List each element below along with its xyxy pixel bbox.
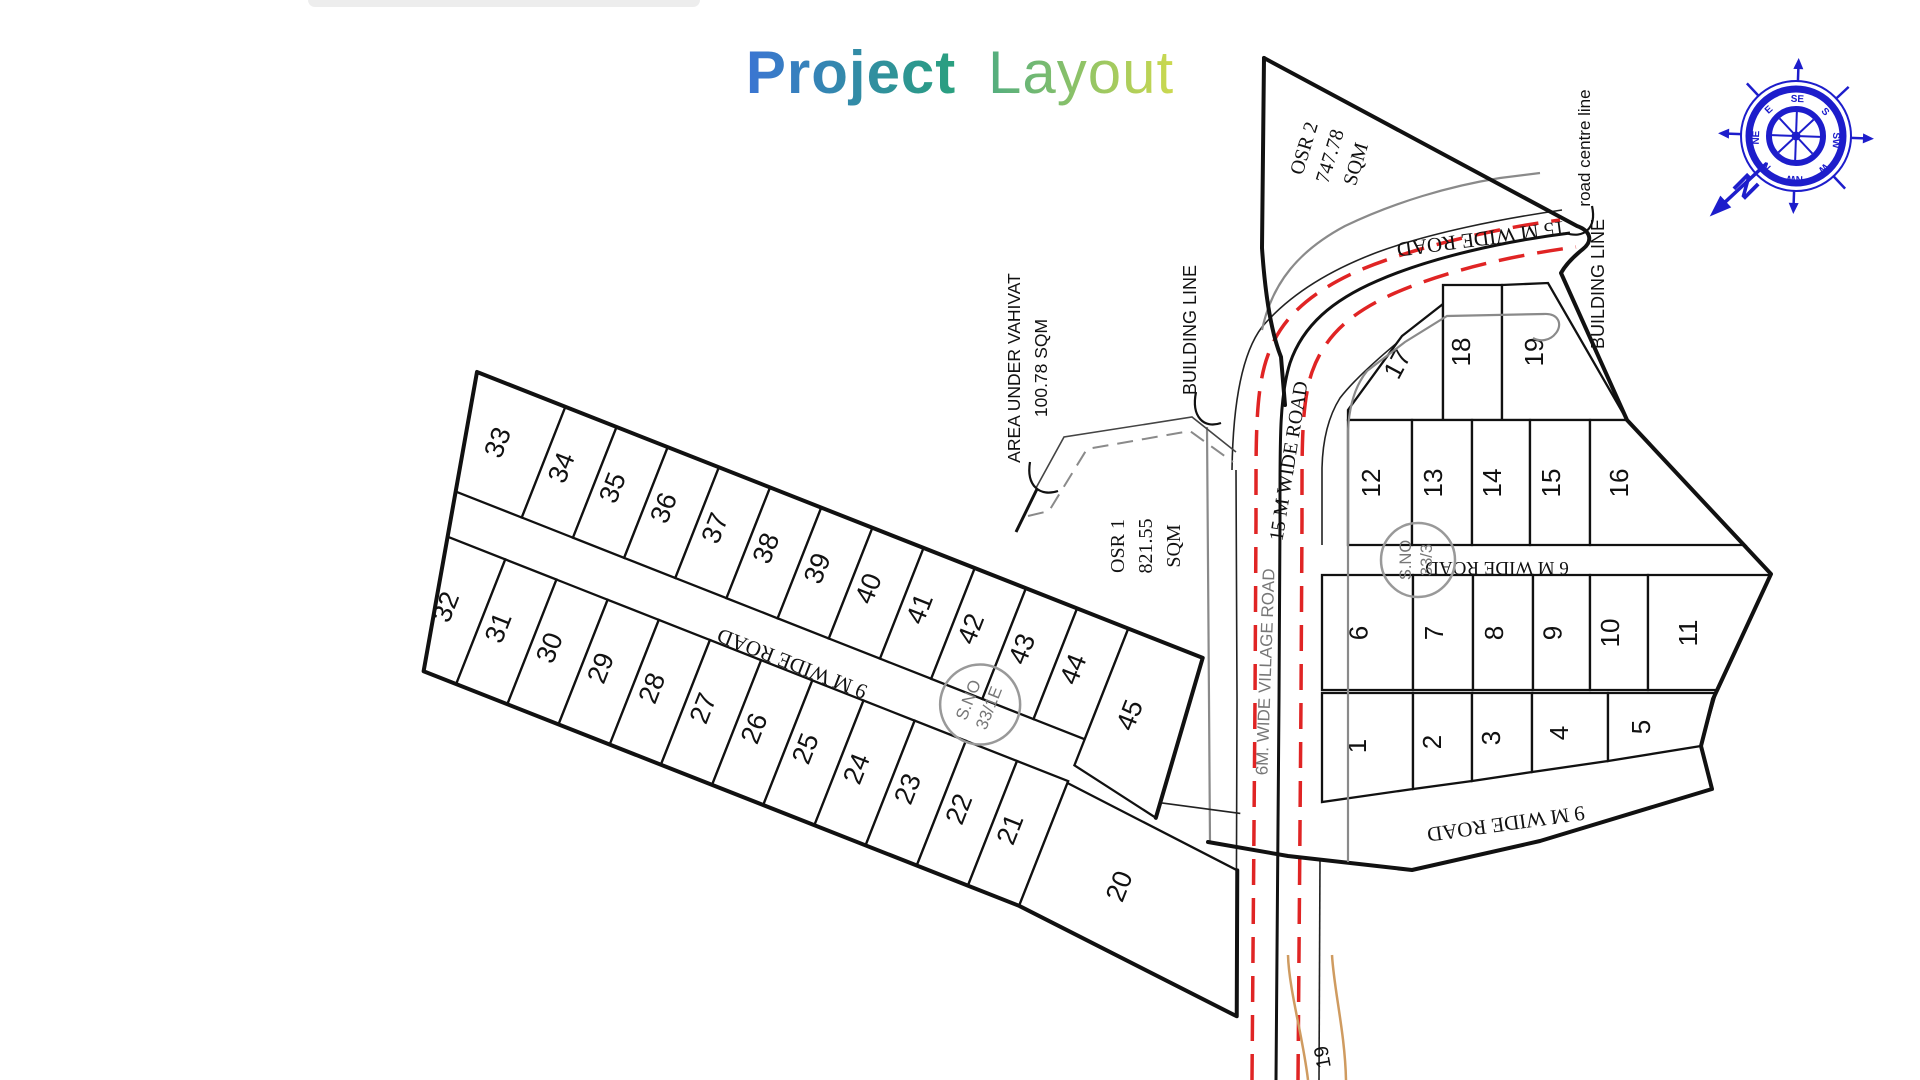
osr1-line3: SQM: [1163, 524, 1185, 568]
compass-spike-arrowhead: [1789, 203, 1799, 214]
page: Project Layout 3334353637383940414243444…: [0, 0, 1920, 1080]
road-label-6m: 6 M WIDE ROAD: [1425, 557, 1569, 578]
compass-spike: [1834, 176, 1846, 188]
vahivat-line1: AREA UNDER VAHIVAT: [1004, 273, 1024, 463]
plot-number-9: 9: [1538, 626, 1568, 640]
compass-spoke: [1796, 120, 1814, 136]
vahivat-boundary-dashed: [1028, 431, 1233, 516]
compass-spoke: [1795, 136, 1796, 160]
plot-number-1: 1: [1342, 739, 1372, 753]
compass-dir-E: E: [1763, 104, 1776, 117]
compass-spoke: [1772, 135, 1796, 136]
plot-number-16: 16: [1604, 469, 1634, 498]
compass-spoke: [1796, 136, 1820, 137]
survey-right-line2: 33/3: [1418, 544, 1436, 576]
compass-spoke: [1796, 112, 1797, 136]
plot-number-12: 12: [1356, 469, 1386, 498]
compass-dir-SE: SE: [1791, 94, 1805, 105]
survey-right-line1: S.NO: [1397, 540, 1415, 581]
left-block: 3334353637383940414243444532313029282726…: [359, 372, 1354, 1016]
vahivat-label: AREA UNDER VAHIVAT100.78 SQM: [1004, 273, 1051, 463]
compass-spike: [1836, 87, 1848, 99]
vahivat-boundary-solid: [1036, 417, 1236, 488]
building-line-label-left: BUILDING LINE: [1180, 265, 1200, 395]
osr1-line2: 821.55: [1135, 519, 1157, 574]
road-label-9m-right: 9 M WIDE ROAD: [1426, 801, 1587, 847]
osr2-label: OSR 2747.78SQM: [1286, 119, 1375, 194]
plot-number-3: 3: [1476, 731, 1506, 745]
compass-dir-S: S: [1819, 106, 1832, 119]
plot-number-7: 7: [1419, 626, 1449, 640]
plot-number-2: 2: [1417, 735, 1447, 749]
plot-number-15: 15: [1536, 469, 1566, 498]
plot-number-5: 5: [1626, 720, 1656, 734]
vahivat-hook: [1029, 462, 1058, 493]
compass: NNEESESSWWNWN: [1710, 58, 1874, 216]
left-road-extension-edge: [1162, 785, 1241, 831]
plot-number-4: 4: [1544, 726, 1574, 740]
right-block-apex-left-edge: [1262, 58, 1285, 405]
plot-number-18: 18: [1446, 338, 1476, 367]
compass-dir-SW: SW: [1830, 132, 1842, 149]
plot-shape-5: [1608, 693, 1716, 761]
plot-shape-11: [1648, 575, 1771, 690]
compass-spike-arrowhead: [1793, 58, 1803, 69]
road-centre-line-label: road centre line: [1575, 89, 1594, 206]
compass-dir-NW: NW: [1786, 173, 1804, 185]
osr1-label: OSR 1821.55SQM: [1107, 519, 1185, 574]
plot-number-11: 11: [1673, 620, 1703, 647]
vahivat-corner-segment: [1016, 489, 1037, 532]
road-label-15m-side: 15 M WIDE ROAD: [1266, 380, 1313, 543]
building-line-left-hook: [1195, 392, 1221, 425]
plot-number-14: 14: [1477, 469, 1507, 498]
plot-number-8: 8: [1479, 626, 1509, 640]
compass-spike-arrowhead: [1863, 133, 1874, 143]
compass-spoke: [1780, 118, 1796, 136]
compass-north-letter: N: [1727, 166, 1766, 205]
building-line-label-right: BUILDING LINE: [1588, 219, 1608, 349]
compass-spike-arrowhead: [1718, 129, 1729, 139]
building-line-west: [1207, 427, 1210, 843]
compass-spike: [1747, 83, 1759, 95]
site-plan-drawing: 3334353637383940414243444532313029282726…: [0, 0, 1920, 1080]
compass-spoke: [1796, 136, 1812, 154]
bottom-road-marker: 19: [1310, 1044, 1336, 1070]
compass-spoke: [1778, 136, 1796, 152]
plot-number-19: 19: [1519, 338, 1549, 367]
osr1-line1: OSR 1: [1107, 519, 1129, 573]
compass-dir-NE: NE: [1751, 130, 1762, 145]
vahivat-line2: 100.78 SQM: [1031, 319, 1051, 417]
road-label-15m-top: 15 M WIDE ROAD: [1395, 216, 1566, 262]
plot-number-10: 10: [1595, 619, 1625, 648]
plot-number-13: 13: [1418, 469, 1448, 498]
